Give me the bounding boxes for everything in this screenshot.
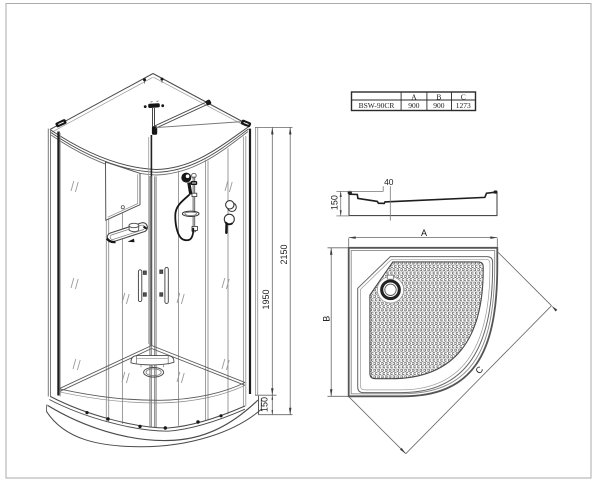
svg-text:150: 150 <box>260 397 270 412</box>
svg-text:900: 900 <box>433 101 445 110</box>
svg-text:BSW-90CR: BSW-90CR <box>359 101 395 110</box>
svg-text:A: A <box>421 228 427 238</box>
svg-text:900: 900 <box>408 101 420 110</box>
svg-text:1273: 1273 <box>456 101 471 110</box>
svg-text:40: 40 <box>384 177 394 187</box>
svg-text:2150: 2150 <box>279 244 289 264</box>
svg-text:1950: 1950 <box>261 289 271 309</box>
svg-text:B: B <box>322 316 332 322</box>
svg-text:150: 150 <box>330 195 340 210</box>
